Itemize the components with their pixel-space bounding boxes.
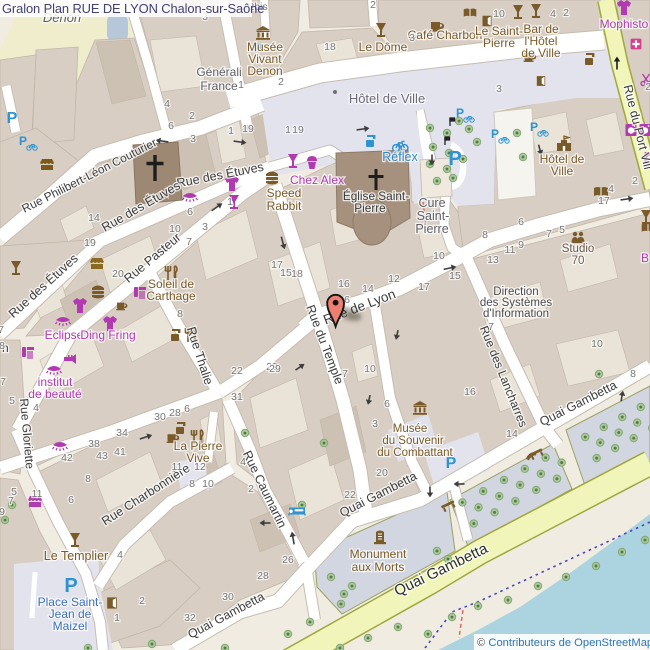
svg-text:P: P	[7, 110, 18, 127]
svg-text:du Souvenir: du Souvenir	[382, 435, 444, 447]
svg-text:P: P	[448, 148, 461, 170]
svg-text:Maizel: Maizel	[53, 619, 88, 633]
svg-text:© Contributeurs de OpenStreetM: © Contributeurs de OpenStreetMap	[477, 637, 650, 649]
svg-text:de Ville: de Ville	[521, 46, 560, 60]
svg-text:Pierre: Pierre	[483, 36, 515, 50]
svg-text:2: 2	[278, 76, 284, 88]
svg-text:4: 4	[164, 98, 170, 110]
svg-text:P: P	[491, 127, 499, 141]
svg-text:1: 1	[238, 79, 244, 91]
svg-text:10: 10	[493, 8, 505, 20]
svg-text:France: France	[200, 79, 238, 93]
svg-text:29: 29	[269, 363, 281, 375]
svg-text:18: 18	[324, 41, 336, 53]
svg-text:10: 10	[591, 338, 603, 350]
svg-text:7: 7	[186, 236, 192, 248]
svg-text:2: 2	[632, 175, 638, 187]
svg-text:26: 26	[282, 554, 294, 566]
svg-text:14: 14	[88, 212, 100, 224]
svg-text:70: 70	[572, 255, 585, 267]
svg-text:19: 19	[242, 123, 254, 135]
svg-text:14: 14	[506, 428, 518, 440]
svg-text:6: 6	[384, 398, 390, 410]
svg-text:12: 12	[388, 273, 400, 285]
svg-text:17: 17	[598, 195, 610, 207]
svg-text:Rabbit: Rabbit	[267, 199, 302, 213]
svg-text:Studio: Studio	[562, 243, 595, 255]
svg-text:19: 19	[84, 237, 96, 249]
svg-text:du Combattant: du Combattant	[377, 447, 453, 459]
svg-text:6: 6	[518, 216, 524, 228]
svg-text:6: 6	[187, 206, 193, 218]
svg-text:P: P	[64, 575, 77, 597]
svg-text:7: 7	[0, 376, 6, 388]
svg-text:34: 34	[116, 427, 128, 439]
svg-text:Ville: Ville	[551, 164, 574, 178]
svg-text:10: 10	[433, 250, 445, 262]
svg-text:1: 1	[285, 124, 291, 136]
svg-text:2: 2	[189, 110, 195, 122]
svg-text:43: 43	[96, 450, 108, 462]
svg-text:6: 6	[168, 120, 174, 132]
svg-text:14: 14	[362, 283, 374, 295]
svg-text:Le Dôme: Le Dôme	[359, 40, 408, 54]
svg-text:Mophisto: Mophisto	[600, 17, 649, 31]
svg-text:30: 30	[222, 591, 234, 603]
svg-text:30: 30	[154, 411, 166, 423]
svg-text:Café Charbon: Café Charbon	[408, 28, 483, 42]
svg-text:3: 3	[372, 418, 378, 430]
svg-text:16: 16	[464, 386, 476, 398]
svg-text:Réflex: Réflex	[382, 150, 418, 164]
svg-text:2: 2	[370, 0, 376, 11]
svg-text:19: 19	[292, 124, 304, 136]
svg-text:7: 7	[546, 228, 552, 240]
svg-text:Hôtel de Ville: Hôtel de Ville	[349, 91, 425, 106]
svg-text:aux Morts: aux Morts	[352, 560, 405, 574]
svg-text:3: 3	[409, 32, 415, 44]
svg-text:Gralon Plan RUE DE LYON Chalon: Gralon Plan RUE DE LYON Chalon-sur-Saône	[2, 1, 264, 16]
svg-text:6: 6	[344, 294, 350, 306]
svg-text:P: P	[19, 134, 27, 148]
svg-text:3: 3	[202, 221, 208, 233]
svg-text:10: 10	[169, 223, 181, 235]
svg-text:8: 8	[189, 478, 195, 490]
svg-text:13: 13	[487, 254, 499, 266]
svg-text:10: 10	[202, 478, 214, 490]
svg-text:41: 41	[114, 446, 126, 458]
svg-text:11: 11	[505, 244, 516, 256]
svg-text:17: 17	[418, 281, 430, 293]
svg-text:18: 18	[291, 268, 303, 280]
svg-text:20: 20	[112, 268, 124, 280]
svg-text:2: 2	[248, 483, 254, 495]
svg-text:1: 1	[228, 125, 234, 137]
svg-text:32: 32	[184, 612, 196, 624]
svg-text:20: 20	[376, 467, 388, 479]
svg-text:5: 5	[559, 224, 565, 236]
svg-text:4: 4	[608, 183, 614, 195]
svg-text:Générali: Générali	[196, 65, 241, 79]
svg-text:3: 3	[190, 133, 196, 145]
svg-text:Carthage: Carthage	[146, 289, 196, 303]
svg-text:Saint-: Saint-	[417, 209, 450, 223]
svg-text:8: 8	[85, 473, 91, 485]
svg-text:2: 2	[139, 595, 145, 607]
svg-text:6: 6	[68, 494, 74, 506]
svg-text:22: 22	[344, 489, 356, 501]
svg-text:P: P	[456, 106, 464, 120]
svg-text:6: 6	[184, 403, 190, 415]
svg-text:B: B	[641, 251, 649, 265]
svg-text:11: 11	[172, 461, 183, 473]
svg-text:Ding Fring: Ding Fring	[80, 328, 135, 342]
svg-text:7: 7	[0, 324, 4, 336]
svg-text:22: 22	[231, 365, 243, 377]
svg-text:Pierre: Pierre	[415, 222, 448, 236]
svg-text:38: 38	[88, 438, 100, 450]
svg-text:8: 8	[630, 368, 636, 380]
svg-text:7: 7	[488, 321, 494, 333]
svg-text:28: 28	[257, 570, 269, 582]
svg-text:d'Information: d'Information	[483, 308, 549, 320]
svg-text:Eclipse: Eclipse	[45, 328, 84, 342]
svg-text:8: 8	[177, 308, 183, 320]
svg-text:16: 16	[338, 278, 350, 290]
svg-text:4: 4	[550, 8, 556, 20]
svg-text:P: P	[530, 120, 538, 134]
svg-text:Cure: Cure	[418, 196, 445, 210]
svg-text:9: 9	[0, 506, 5, 518]
svg-text:de beauté: de beauté	[28, 387, 82, 401]
svg-text:12: 12	[194, 461, 206, 473]
svg-text:5: 5	[11, 486, 17, 498]
svg-text:4: 4	[240, 456, 246, 468]
svg-text:28: 28	[169, 407, 181, 419]
svg-text:8: 8	[0, 340, 5, 352]
svg-text:42: 42	[61, 452, 73, 464]
svg-text:10: 10	[364, 363, 376, 375]
svg-text:Chez Alex: Chez Alex	[290, 173, 344, 187]
svg-text:15: 15	[449, 270, 461, 282]
svg-text:11: 11	[32, 488, 43, 500]
svg-text:1: 1	[114, 612, 120, 624]
svg-text:2: 2	[645, 81, 650, 93]
svg-text:1: 1	[227, 196, 233, 208]
svg-text:2: 2	[563, 7, 569, 19]
svg-text:Monument: Monument	[350, 547, 407, 561]
svg-text:8: 8	[482, 229, 488, 241]
svg-text:Musée: Musée	[393, 423, 428, 435]
svg-text:7: 7	[342, 368, 348, 380]
svg-text:5: 5	[9, 395, 15, 407]
svg-text:9: 9	[518, 239, 524, 251]
svg-text:4: 4	[33, 402, 39, 414]
svg-text:Pierre: Pierre	[354, 201, 386, 215]
svg-text:Le Templier: Le Templier	[44, 549, 108, 563]
svg-text:Speed: Speed	[267, 186, 302, 200]
svg-text:4: 4	[117, 549, 123, 561]
svg-text:31: 31	[231, 391, 243, 403]
svg-text:3: 3	[496, 83, 502, 95]
